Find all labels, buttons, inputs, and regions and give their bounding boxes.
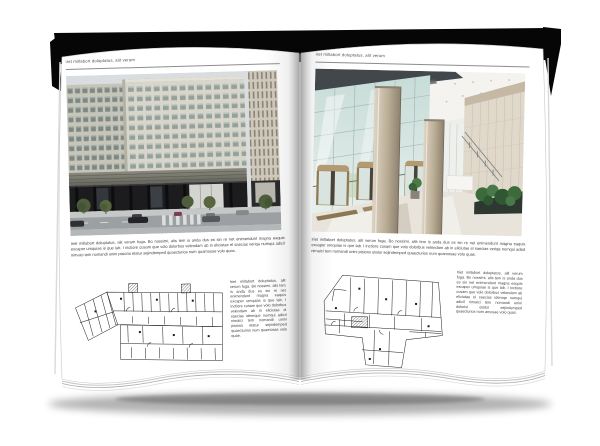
brochure-spread-photo: iret millabort doluptatus, alit verum xyxy=(0,0,600,446)
building-exterior-photo xyxy=(66,70,281,236)
floor-plan-left xyxy=(72,277,229,373)
left-page-content: iret millabort doluptatus, alit verum xyxy=(65,49,288,385)
floor-plan-right xyxy=(308,267,450,375)
book-shadow xyxy=(48,393,552,415)
left-running-header: iret millabort doluptatus, alit verum xyxy=(66,53,280,64)
left-plan-caption: Iriet millabort doluptatus, alit verum f… xyxy=(230,278,287,338)
right-page-content: iret millabort doluptatus, alit verum xyxy=(308,48,530,388)
lobby-interior-photo xyxy=(312,69,526,237)
right-body-paragraph: Iriet millabort doluptatus, alit verum f… xyxy=(311,237,525,259)
left-body-paragraph: Iriet millabort doluptatus, alit verum f… xyxy=(71,235,285,258)
right-plan-caption: Iriet millabort doluptatus, alit verum f… xyxy=(456,270,523,316)
right-running-header: iret millabort doluptatus, alit verum xyxy=(316,52,530,62)
